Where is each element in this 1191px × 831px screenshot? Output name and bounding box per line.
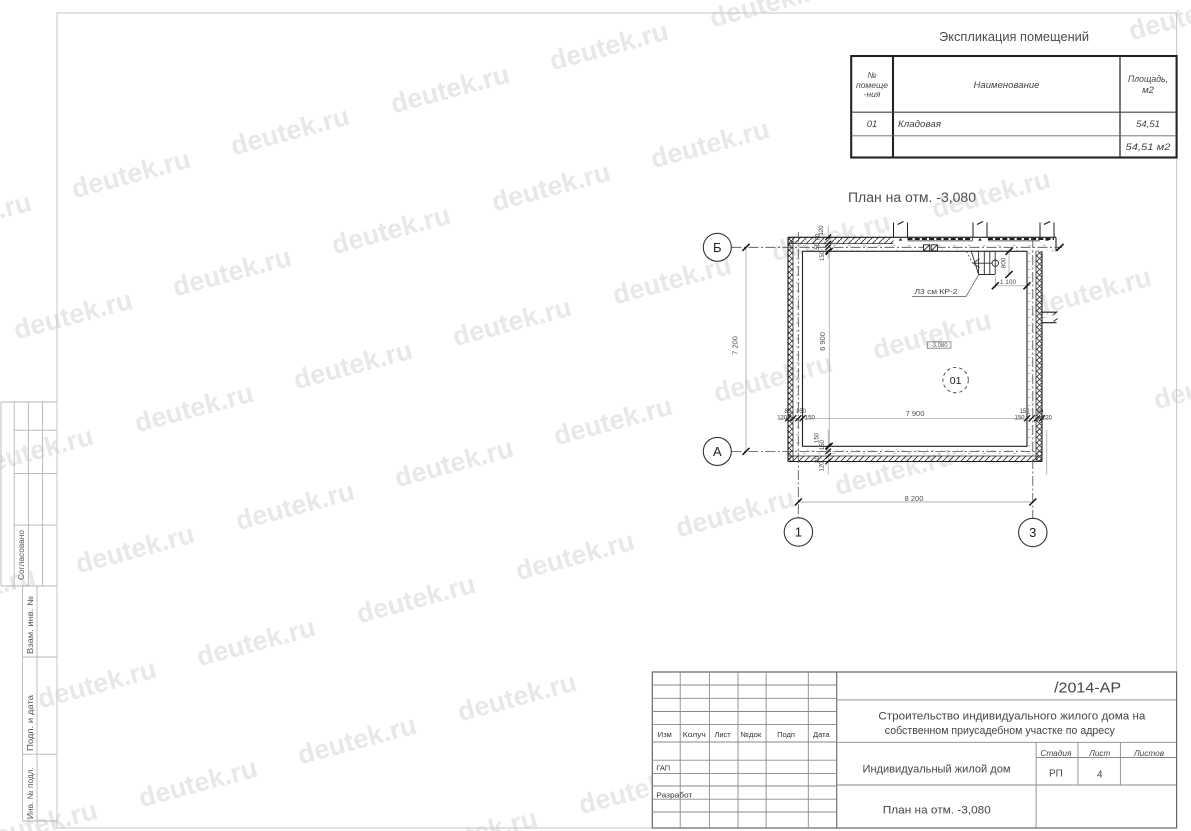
svg-text:150: 150 <box>805 416 816 422</box>
svg-text:собственном приусадебном участ: собственном приусадебном участке по адре… <box>885 725 1115 737</box>
svg-text:deutek.ru: deutek.ru <box>72 519 197 579</box>
svg-text:1: 1 <box>795 525 802 540</box>
svg-text:54,51 м2: 54,51 м2 <box>1126 142 1172 153</box>
svg-text:54,51: 54,51 <box>1136 119 1160 130</box>
svg-text:deutek.ru: deutek.ru <box>512 526 637 586</box>
svg-text:Взам. инв. №: Взам. инв. № <box>26 596 35 654</box>
svg-text:План на отм. -3,080: План на отм. -3,080 <box>883 805 991 817</box>
svg-text:Разработ: Разработ <box>656 791 693 800</box>
svg-text:6 900: 6 900 <box>818 332 827 351</box>
svg-text:Б: Б <box>713 240 722 255</box>
svg-text:РП: РП <box>1049 769 1063 780</box>
svg-text:deutek.ru: deutek.ru <box>546 16 671 76</box>
svg-text:ГАП: ГАП <box>656 764 670 773</box>
svg-text:Подп. и дата: Подп. и дата <box>26 694 35 751</box>
svg-text:Индивидуальный жилой дом: Индивидуальный жилой дом <box>863 764 1011 776</box>
svg-text:-3,080: -3,080 <box>931 343 949 349</box>
svg-text:/2014-АР: /2014-АР <box>1054 681 1121 697</box>
svg-text:deutek.ru: deutek.ru <box>131 378 256 438</box>
svg-text:deutek.ru: deutek.ru <box>10 285 135 345</box>
svg-text:Подп: Подп <box>777 730 795 739</box>
svg-text:deutek.ru: deutek.ru <box>227 101 352 161</box>
svg-text:deutek.ru: deutek.ru <box>1150 355 1191 415</box>
svg-text:8 200: 8 200 <box>905 494 924 503</box>
svg-text:deutek.ru: deutek.ru <box>294 710 419 770</box>
svg-text:deutek.ru: deutek.ru <box>672 483 797 543</box>
svg-text:deutek.ru: deutek.ru <box>706 0 831 33</box>
svg-text:Колуч: Колуч <box>683 730 706 739</box>
svg-text:deutek.ru: deutek.ru <box>0 187 35 247</box>
svg-text:Экспликация помещений: Экспликация помещений <box>939 29 1089 44</box>
svg-text:150: 150 <box>796 409 807 415</box>
svg-text:Наименование: Наименование <box>974 80 1040 91</box>
svg-text:1 100: 1 100 <box>1000 279 1017 286</box>
svg-text:Лист: Лист <box>1088 749 1110 758</box>
svg-text:deutek.ru: deutek.ru <box>647 114 772 174</box>
svg-text:01: 01 <box>867 119 878 130</box>
svg-text:deutek.ru: deutek.ru <box>449 292 574 352</box>
svg-text:Площадь,: Площадь, <box>1128 74 1168 85</box>
svg-text:Инв. № подл.: Инв. № подл. <box>26 767 35 819</box>
svg-text:800: 800 <box>1001 257 1008 268</box>
svg-text:deutek.ru: deutek.ru <box>169 242 294 302</box>
svg-text:3: 3 <box>1029 525 1036 540</box>
svg-text:80: 80 <box>784 409 791 415</box>
svg-text:Дата: Дата <box>813 730 830 739</box>
svg-text:deutek.ru: deutek.ru <box>135 753 260 813</box>
svg-text:deutek.ru: deutek.ru <box>290 335 415 395</box>
svg-text:План на отм. -3,080: План на отм. -3,080 <box>848 190 976 205</box>
svg-text:deutek.ru: deutek.ru <box>869 305 994 365</box>
svg-text:Строительство индивидуального: Строительство индивидуального жилого дом… <box>878 711 1146 723</box>
svg-text:deutek.ru: deutek.ru <box>415 803 540 831</box>
svg-text:7 200: 7 200 <box>731 336 740 355</box>
svg-text:Согласовано: Согласовано <box>17 529 26 580</box>
svg-text:deutek.ru: deutek.ru <box>391 433 516 493</box>
svg-text:150: 150 <box>820 250 826 261</box>
svg-text:deutek.ru: deutek.ru <box>328 200 453 260</box>
svg-text:deutek.ru: deutek.ru <box>34 654 159 714</box>
svg-text:80: 80 <box>816 233 822 240</box>
svg-text:deutek.ru: deutek.ru <box>232 476 357 536</box>
svg-text:150: 150 <box>820 439 826 450</box>
svg-text:Кладовая: Кладовая <box>898 119 941 130</box>
svg-text:4: 4 <box>1097 770 1103 781</box>
svg-text:80: 80 <box>1037 409 1044 415</box>
svg-text:Стадия: Стадия <box>1040 749 1072 758</box>
svg-text:м2: м2 <box>1142 85 1155 96</box>
svg-text:deutek.ru: deutek.ru <box>488 157 613 217</box>
svg-text:150: 150 <box>1019 409 1030 415</box>
svg-text:01: 01 <box>950 375 962 387</box>
svg-text:А: А <box>713 444 722 459</box>
svg-text:deutek.ru: deutek.ru <box>1125 0 1191 46</box>
svg-text:Листов: Листов <box>1133 749 1164 758</box>
svg-text:№: № <box>867 70 876 80</box>
svg-text:deutek.ru: deutek.ru <box>1029 262 1154 322</box>
svg-text:150: 150 <box>1014 416 1025 422</box>
svg-text:№док: №док <box>740 730 762 739</box>
svg-text:deutek.ru: deutek.ru <box>710 348 835 408</box>
svg-text:Л3 см КР-2: Л3 см КР-2 <box>915 287 958 296</box>
svg-text:deutek.ru: deutek.ru <box>609 250 734 310</box>
svg-text:120: 120 <box>1042 416 1053 422</box>
svg-text:Лист: Лист <box>714 730 731 739</box>
svg-text:deutek.ru: deutek.ru <box>68 144 193 204</box>
svg-text:120: 120 <box>777 416 788 422</box>
svg-text:deutek.ru: deutek.ru <box>193 612 318 672</box>
svg-text:deutek.ru: deutek.ru <box>387 59 512 119</box>
svg-text:deutek.ru: deutek.ru <box>550 391 675 451</box>
svg-text:deutek.ru: deutek.ru <box>454 667 579 727</box>
svg-text:7 900: 7 900 <box>906 409 925 418</box>
svg-text:120: 120 <box>820 461 826 472</box>
svg-text:deutek.ru: deutek.ru <box>353 569 478 629</box>
svg-text:-ния: -ния <box>864 89 881 99</box>
svg-text:Изм: Изм <box>658 730 672 739</box>
svg-text:deutek.ru: deutek.ru <box>0 795 101 831</box>
